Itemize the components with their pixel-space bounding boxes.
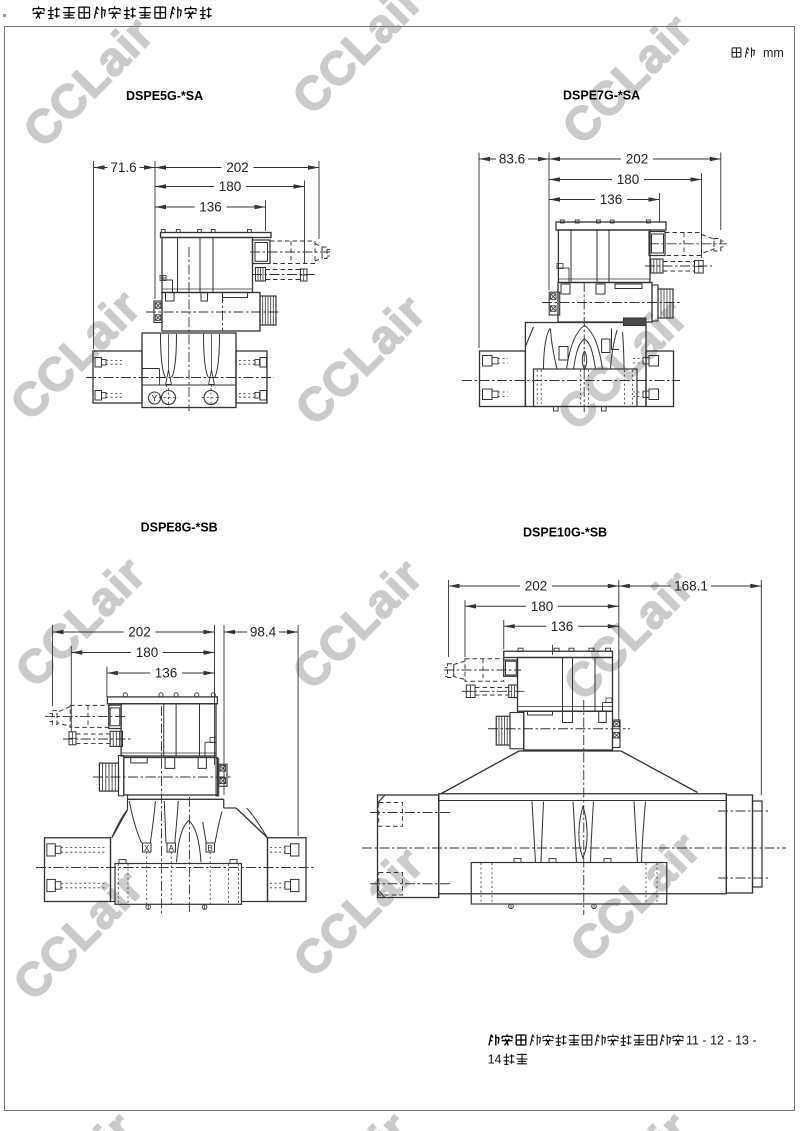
svg-text:136: 136 (551, 619, 574, 634)
svg-text:B: B (208, 844, 213, 853)
svg-text:A: A (169, 844, 175, 853)
svg-text:202: 202 (626, 152, 649, 167)
svg-text:180: 180 (617, 172, 640, 187)
svg-text:180: 180 (136, 645, 159, 660)
svg-text:202: 202 (525, 579, 548, 594)
svg-text:DSPE8G-*SB: DSPE8G-*SB (141, 521, 218, 535)
svg-text:180: 180 (531, 599, 554, 614)
svg-text:180: 180 (219, 179, 242, 194)
svg-text:202: 202 (226, 160, 249, 175)
svg-text:98.4: 98.4 (250, 625, 277, 640)
svg-text:DSPE10G-*SB: DSPE10G-*SB (523, 526, 607, 540)
svg-text:136: 136 (199, 200, 222, 215)
svg-text:mm: mm (763, 46, 784, 60)
svg-text:168.1: 168.1 (674, 579, 708, 594)
svg-text:14: 14 (488, 1053, 502, 1067)
svg-text:DSPE5G-*SA: DSPE5G-*SA (126, 89, 203, 103)
svg-text:136: 136 (155, 666, 178, 681)
svg-text:202: 202 (128, 625, 151, 640)
svg-text:Y: Y (152, 393, 158, 403)
svg-text:X: X (144, 844, 150, 853)
svg-text:136: 136 (600, 192, 623, 207)
svg-text:11 - 12 - 13 -: 11 - 12 - 13 - (686, 1034, 757, 1048)
svg-text:71.6: 71.6 (110, 160, 136, 175)
svg-text:83.6: 83.6 (499, 152, 525, 167)
svg-text:DSPE7G-*SA: DSPE7G-*SA (563, 89, 640, 103)
